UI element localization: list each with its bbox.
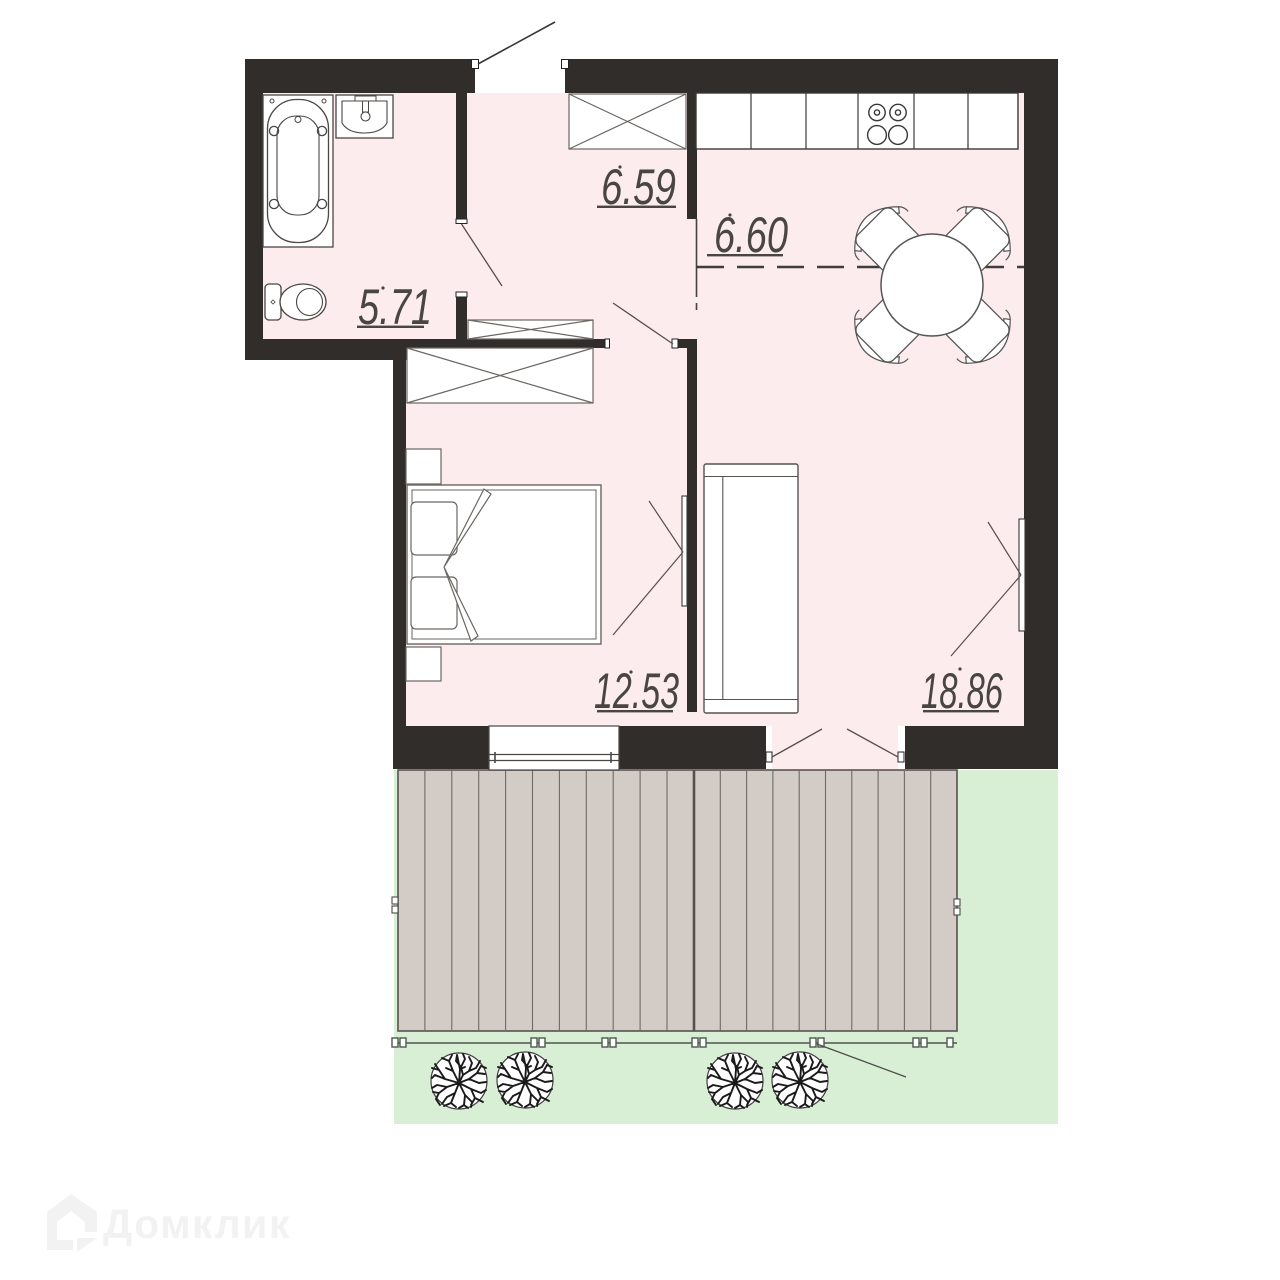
- svg-text:Домклик: Домклик: [103, 1201, 291, 1247]
